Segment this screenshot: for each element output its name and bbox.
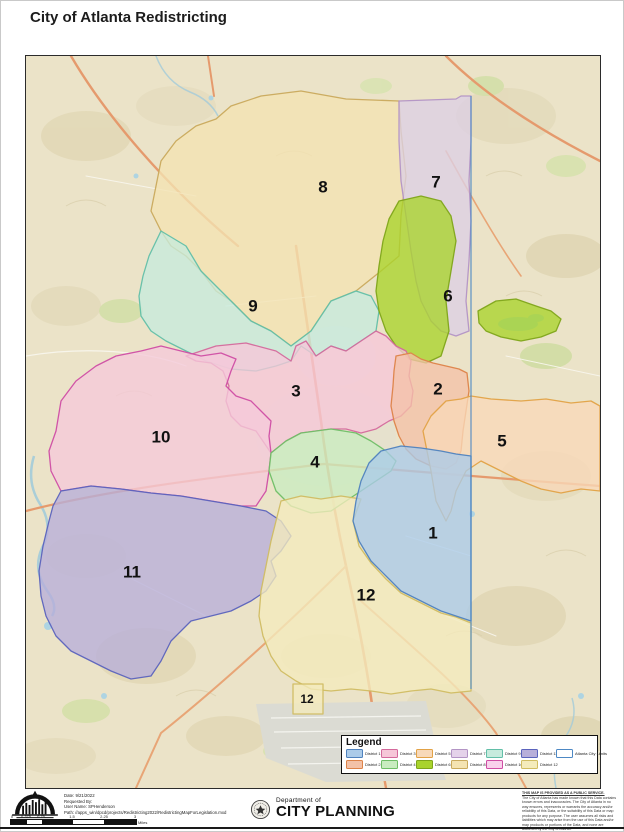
scale-bar-unit: Miles (138, 820, 147, 825)
legend-label: District 7 (470, 751, 486, 756)
district-7-number-label: 7 (431, 172, 440, 191)
scale-tick: 3 (134, 814, 136, 819)
scale-tick: 0.75 (37, 814, 45, 819)
legend-swatch (521, 760, 538, 769)
legend-item-district-5: District 5 (416, 749, 451, 758)
legend-label: District 3 (400, 751, 416, 756)
legend-item-atlanta-city-limits: Atlanta City Limits (556, 749, 607, 758)
legend-item-district-11: District 11 (521, 749, 556, 758)
disclaimer-body: The City of Atlanta has made known that … (522, 796, 616, 832)
district-12-number-label: 12 (357, 585, 376, 604)
legend-item-district-4: District 4 (381, 760, 416, 769)
legend-swatch (381, 760, 398, 769)
legend-label: District 4 (400, 762, 416, 767)
district-9-number-label: 9 (248, 296, 257, 315)
legend-label: District 9 (505, 751, 521, 756)
district-3-number-label: 3 (291, 381, 300, 400)
legend-swatch (416, 749, 433, 758)
department-wordmark: Department of CITY PLANNING (276, 797, 395, 819)
scale-bar: 0 0.375 0.75 1.5 2.25 3 Miles (10, 814, 140, 826)
legend-swatch (346, 760, 363, 769)
legend-item-district-9: District 9 (486, 749, 521, 758)
legend-swatch (451, 749, 468, 758)
map-frame: 87963102541112112 (25, 55, 601, 789)
legend-item-district-3: District 3 (381, 749, 416, 758)
scale-tick: 2.25 (100, 814, 108, 819)
legend-label: District 12 (540, 762, 558, 767)
scale-tick: 0 (11, 814, 13, 819)
legend-swatch (381, 749, 398, 758)
district-6-number-label: 6 (443, 286, 452, 305)
district-8-number-label: 8 (318, 177, 327, 196)
legend-label: District 11 (540, 751, 557, 756)
district-5-number-label: 5 (497, 431, 506, 450)
legend-swatch (451, 760, 468, 769)
legend-label: District 8 (470, 762, 486, 767)
map-canvas: 87963102541112112 (26, 56, 600, 788)
map-document-page: City of Atlanta Redistricting (0, 0, 624, 832)
legend-label: Atlanta City Limits (575, 751, 607, 756)
legend-item-district-2: District 2 (346, 760, 381, 769)
legend-item-district-8: District 8 (451, 760, 486, 769)
district-1-number-label: 1 (428, 523, 437, 542)
legend-item-district-12: District 12 (521, 760, 556, 769)
legend-label: District 2 (365, 762, 381, 767)
legend-item-district-7: District 7 (451, 749, 486, 758)
legend-swatch (486, 760, 503, 769)
disclaimer-text: THIS MAP IS PROVIDED AS A PUBLIC SERVICE… (522, 791, 617, 832)
scale-bar-segments (10, 819, 137, 825)
page-title: City of Atlanta Redistricting (30, 9, 227, 26)
city-planning-label: CITY PLANNING (276, 804, 395, 819)
legend-swatch (556, 749, 573, 758)
legend-label: District 1 (365, 751, 381, 756)
district-12-exclave-label: 12 (300, 692, 314, 706)
map-info-block: Date: 9/21/2022 Requested By: User Name:… (64, 793, 226, 815)
district-4-number-label: 4 (310, 452, 320, 471)
legend-swatch (521, 749, 538, 758)
scale-tick: 0.375 (21, 814, 31, 819)
legend-title: Legend (346, 737, 593, 748)
legend-label: District 6 (435, 762, 451, 767)
district-10-number-label: 10 (152, 427, 171, 446)
bottom-rule (0, 827, 624, 829)
district-2-number-label: 2 (433, 379, 442, 398)
legend-swatch (346, 749, 363, 758)
legend-item-district-6: District 6 (416, 760, 451, 769)
legend-item-district-1: District 1 (346, 749, 381, 758)
legend-swatch (486, 749, 503, 758)
scale-tick: 1.5 (69, 814, 75, 819)
legend-box: Legend District 1District 3District 5Dis… (341, 735, 598, 774)
legend-item-district-10: District 10 (486, 760, 521, 769)
scale-bar-ticks: 0 0.375 0.75 1.5 2.25 3 (10, 814, 140, 819)
district-11-number-label: 11 (123, 562, 141, 581)
city-seal-icon (250, 799, 271, 825)
legend-label: District 5 (435, 751, 451, 756)
legend-grid: District 1District 3District 5District 7… (346, 748, 593, 770)
legend-swatch (416, 760, 433, 769)
